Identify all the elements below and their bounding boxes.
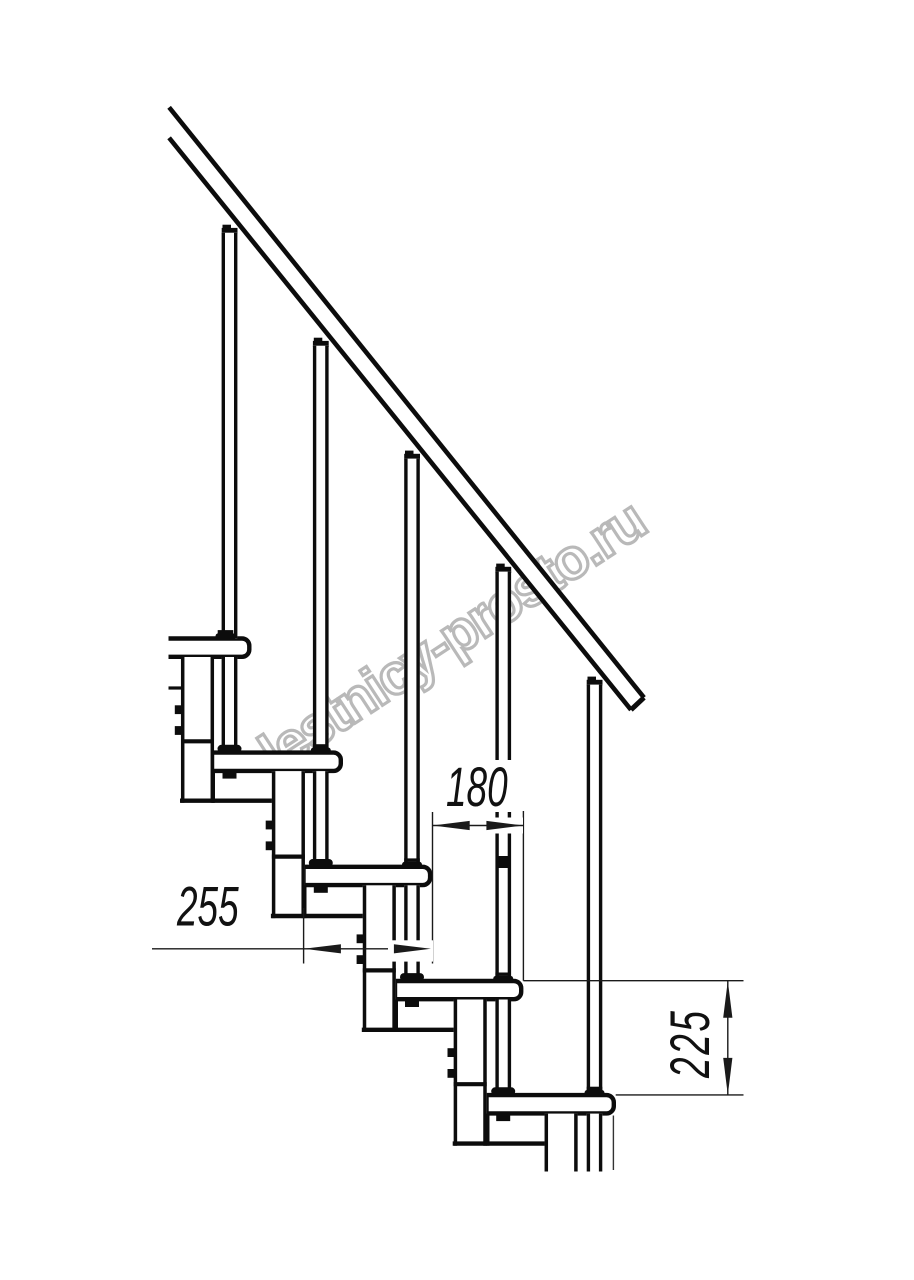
svg-text:255: 255 <box>176 876 239 939</box>
svg-text:180: 180 <box>446 756 508 819</box>
svg-text:225: 225 <box>659 1008 722 1078</box>
